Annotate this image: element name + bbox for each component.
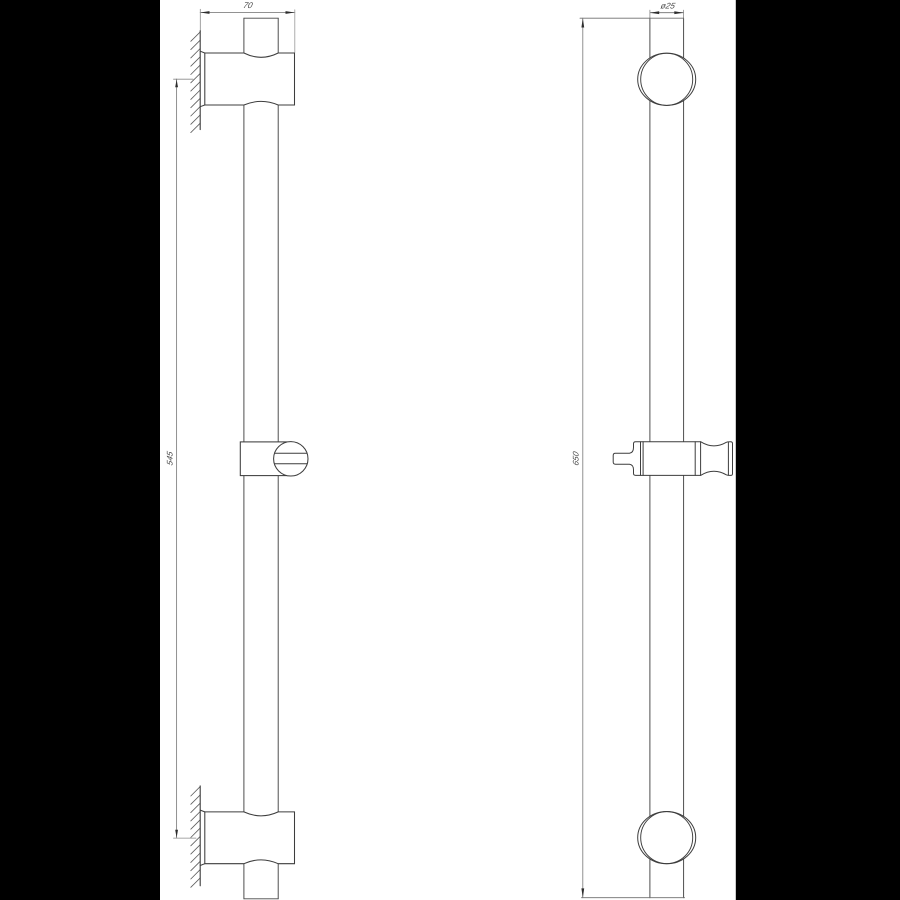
svg-text:545: 545 <box>165 450 175 466</box>
svg-text:ø25: ø25 <box>660 1 677 11</box>
svg-text:650: 650 <box>571 450 581 466</box>
